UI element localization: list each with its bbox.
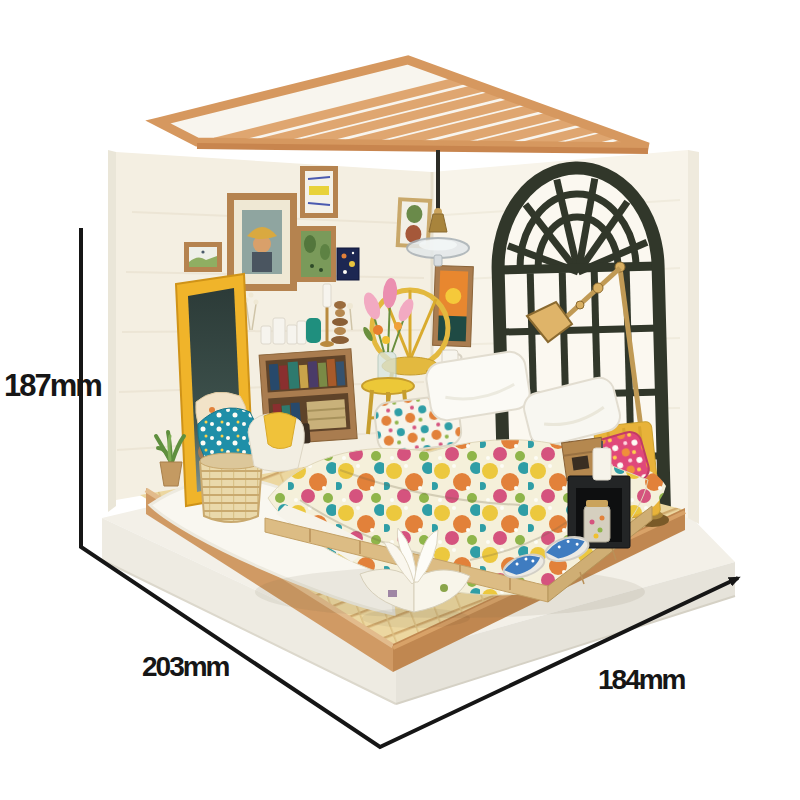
wicker-basket (200, 453, 262, 522)
laundry-bag (248, 412, 304, 471)
height-dimension-label: 187mm (4, 368, 101, 403)
candy-jar (584, 500, 610, 542)
left-wall-outer-edge (108, 150, 116, 512)
right-wall-outer-edge (688, 150, 699, 524)
depth-dimension-label: 184mm (598, 664, 686, 695)
green-painting-frame (296, 226, 336, 282)
landscape-frame (184, 242, 222, 272)
product-photo: 187mm 203mm 184mm (0, 0, 800, 800)
space-postcard (337, 248, 359, 280)
teal-vase (306, 318, 321, 343)
abstract-frame (300, 166, 338, 218)
width-dimension-label: 203mm (142, 651, 230, 682)
scene-illustration: 187mm 203mm 184mm (0, 0, 800, 800)
